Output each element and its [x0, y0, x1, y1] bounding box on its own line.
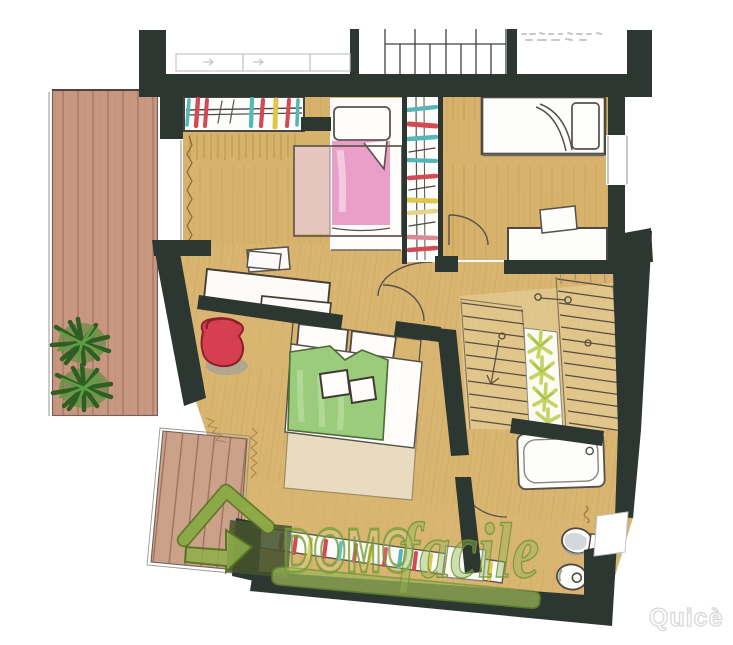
- svg-text:Quicè: Quicè: [649, 604, 723, 632]
- svg-text:DOMO: DOMO: [283, 517, 414, 586]
- svg-text:facile: facile: [399, 508, 539, 595]
